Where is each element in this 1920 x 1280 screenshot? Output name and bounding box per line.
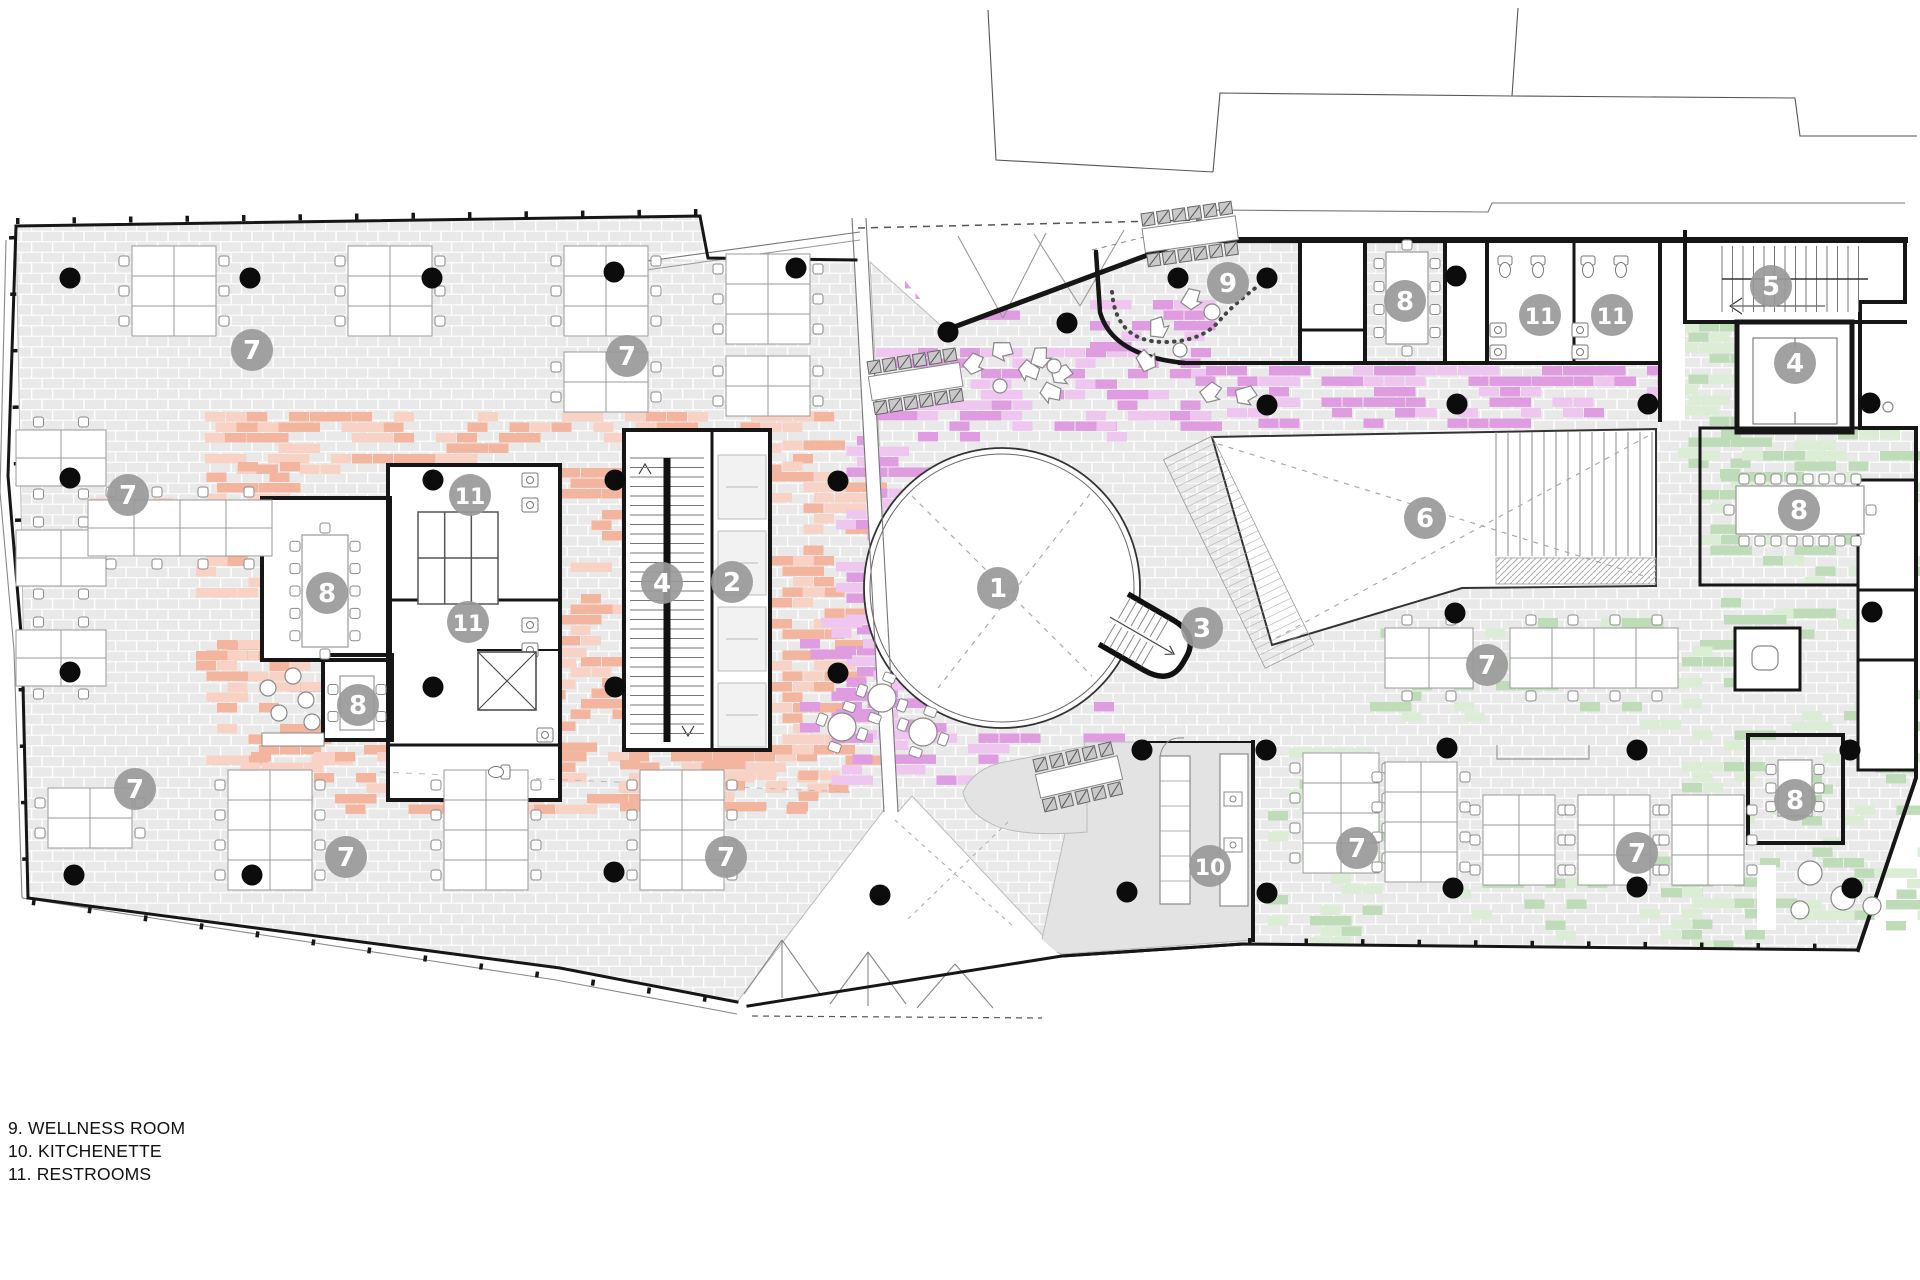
- svg-text:7: 7: [243, 336, 261, 366]
- column-dot: [1862, 602, 1883, 623]
- column-dot: [60, 468, 81, 489]
- room-badge-11: 11: [449, 474, 491, 516]
- svg-text:2: 2: [723, 568, 741, 598]
- column-dot: [422, 268, 443, 289]
- legend-item-10: 10. KITCHENETTE: [8, 1140, 185, 1163]
- svg-text:9: 9: [1219, 269, 1237, 299]
- svg-text:11: 11: [1525, 305, 1556, 330]
- column-dot: [1132, 740, 1153, 761]
- sink: [522, 473, 538, 487]
- svg-text:11: 11: [1597, 305, 1628, 330]
- column-dot: [64, 865, 85, 886]
- legend-item-11: 11. RESTROOMS: [8, 1163, 185, 1186]
- column-dot: [938, 322, 959, 343]
- toilet: [1614, 256, 1628, 278]
- column-dot: [1256, 740, 1277, 761]
- room-badge-7: 7: [1616, 832, 1658, 874]
- column-dot: [605, 470, 626, 491]
- column-dot: [604, 262, 625, 283]
- svg-text:8: 8: [1790, 496, 1808, 526]
- legend-item-9: 9. WELLNESS ROOM: [8, 1117, 185, 1140]
- svg-text:7: 7: [618, 342, 636, 372]
- column-dot: [1842, 878, 1863, 899]
- room-badge-11: 11: [447, 601, 489, 643]
- column-dot: [1443, 878, 1464, 899]
- column-dot: [1638, 394, 1659, 415]
- toilet: [1531, 256, 1545, 278]
- column-dot: [1445, 603, 1466, 624]
- svg-text:3: 3: [1193, 614, 1211, 644]
- svg-text:8: 8: [1396, 287, 1414, 317]
- svg-text:7: 7: [717, 843, 735, 873]
- svg-text:11: 11: [455, 485, 486, 510]
- svg-text:7: 7: [1478, 651, 1496, 681]
- svg-text:4: 4: [653, 569, 671, 599]
- room-badge-7: 7: [325, 836, 367, 878]
- svg-text:10: 10: [1195, 856, 1226, 881]
- room-badge-7: 7: [107, 474, 149, 516]
- svg-text:8: 8: [318, 579, 336, 609]
- svg-text:6: 6: [1416, 504, 1434, 534]
- room-badge-4: 4: [1774, 342, 1816, 384]
- room-badge-7: 7: [1466, 644, 1508, 686]
- room-badge-9: 9: [1207, 262, 1249, 304]
- room-badge-8: 8: [1778, 489, 1820, 531]
- room-badge-5: 5: [1750, 265, 1792, 307]
- column-dot: [1860, 393, 1881, 414]
- room-badge-10: 10: [1189, 845, 1231, 887]
- column-dot: [60, 662, 81, 683]
- svg-text:5: 5: [1762, 272, 1780, 302]
- room-badge-11: 11: [1591, 294, 1633, 336]
- column-dot: [1437, 738, 1458, 759]
- room-badge-6: 6: [1404, 497, 1446, 539]
- column-dot: [242, 865, 263, 886]
- sink: [1490, 345, 1506, 359]
- room-badge-8: 8: [337, 684, 379, 726]
- column-dot: [1627, 877, 1648, 898]
- column-dot: [1117, 882, 1138, 903]
- svg-text:7: 7: [1348, 834, 1366, 864]
- room-badge-7: 7: [1336, 827, 1378, 869]
- column-dot: [1057, 313, 1078, 334]
- column-dot: [1446, 266, 1467, 287]
- room-badge-8: 8: [1774, 779, 1816, 821]
- svg-text:11: 11: [453, 612, 484, 637]
- column-dot: [786, 258, 807, 279]
- svg-text:7: 7: [119, 481, 137, 511]
- sink: [1572, 323, 1588, 337]
- room-badge-2: 2: [711, 561, 753, 603]
- floor-plan-svg: 12344567777777778888891011111111: [0, 0, 1920, 1280]
- room-badge-8: 8: [1384, 280, 1426, 322]
- column-dot: [1447, 394, 1468, 415]
- svg-text:7: 7: [1628, 839, 1646, 869]
- sink: [537, 728, 553, 742]
- column-dot: [1257, 395, 1278, 416]
- column-dot: [870, 885, 891, 906]
- column-dot: [423, 677, 444, 698]
- room-badge-7: 7: [231, 329, 273, 371]
- column-dot: [828, 471, 849, 492]
- legend: 9. WELLNESS ROOM10. KITCHENETTE11. RESTR…: [8, 1117, 185, 1186]
- column-dot: [1257, 883, 1278, 904]
- room-badge-11: 11: [1519, 294, 1561, 336]
- svg-text:4: 4: [1786, 349, 1804, 379]
- sink: [522, 498, 538, 512]
- toilet: [489, 765, 511, 779]
- svg-text:1: 1: [989, 574, 1007, 604]
- room-badge-1: 1: [977, 567, 1019, 609]
- room-badge-8: 8: [306, 572, 348, 614]
- sink: [1572, 345, 1588, 359]
- column-dot: [828, 663, 849, 684]
- svg-text:7: 7: [126, 775, 144, 805]
- room-badge-7: 7: [606, 335, 648, 377]
- room-badge-4: 4: [641, 562, 683, 604]
- floor-plan-page: 12344567777777778888891011111111 9. WELL…: [0, 0, 1920, 1280]
- column-dot: [604, 862, 625, 883]
- room-badge-3: 3: [1181, 607, 1223, 649]
- room-badge-7: 7: [114, 768, 156, 810]
- toilet: [1581, 256, 1595, 278]
- svg-text:8: 8: [1786, 786, 1804, 816]
- svg-text:8: 8: [349, 691, 367, 721]
- column-dot: [605, 677, 626, 698]
- column-dot: [1840, 740, 1861, 761]
- column-dot: [60, 268, 81, 289]
- column-dot: [423, 470, 444, 491]
- column-dot: [1257, 268, 1278, 289]
- toilet: [1498, 256, 1512, 278]
- svg-text:7: 7: [337, 843, 355, 873]
- column-dot: [1168, 268, 1189, 289]
- sink: [1490, 323, 1506, 337]
- column-dot: [1627, 740, 1648, 761]
- column-dot: [240, 268, 261, 289]
- room-badge-7: 7: [705, 836, 747, 878]
- sink: [522, 618, 538, 632]
